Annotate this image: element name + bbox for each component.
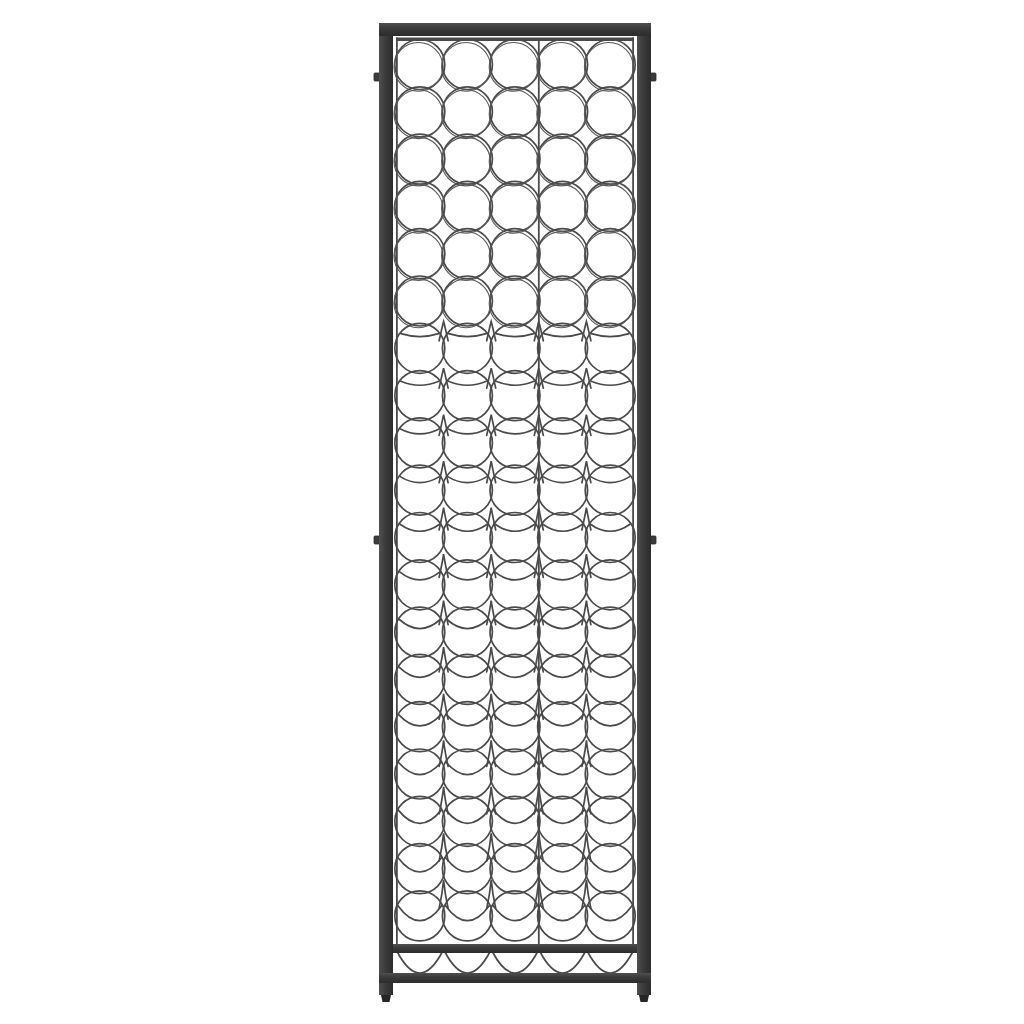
product-photo-canvas	[0, 0, 1024, 1024]
wine-rack-figure	[0, 0, 1024, 1024]
shelf-bar	[393, 944, 637, 953]
wine-rack-svg	[0, 0, 1024, 1024]
left-foot	[381, 995, 391, 1002]
bottom-bar	[379, 973, 651, 983]
right-foot	[639, 995, 649, 1002]
left-post	[379, 23, 393, 995]
top-bar	[379, 23, 651, 36]
right-post	[637, 23, 651, 995]
wine-rack-graphic	[0, 0, 1024, 1024]
